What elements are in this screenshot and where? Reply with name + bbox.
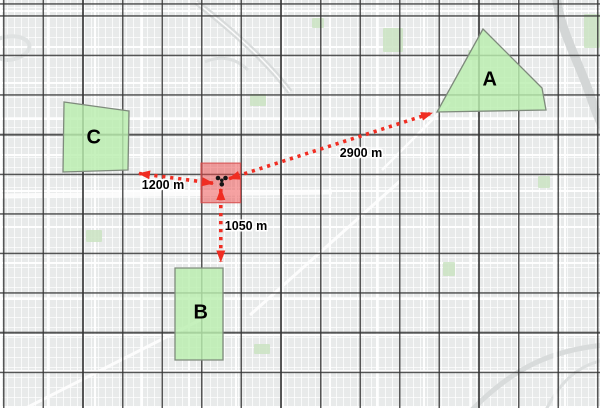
site-a-label: A: [483, 69, 498, 92]
site-b-label: B: [194, 302, 209, 325]
site-c-label: C: [87, 127, 102, 150]
measurement-line-a: [229, 113, 432, 179]
measurement-label-b: 1050 m: [225, 219, 267, 233]
measurement-overlay: [0, 0, 600, 408]
map-canvas[interactable]: A B C 2900 m 1050 m 1200 m: [0, 0, 600, 408]
measurement-label-a: 2900 m: [340, 146, 382, 160]
measurement-label-c: 1200 m: [142, 178, 184, 192]
